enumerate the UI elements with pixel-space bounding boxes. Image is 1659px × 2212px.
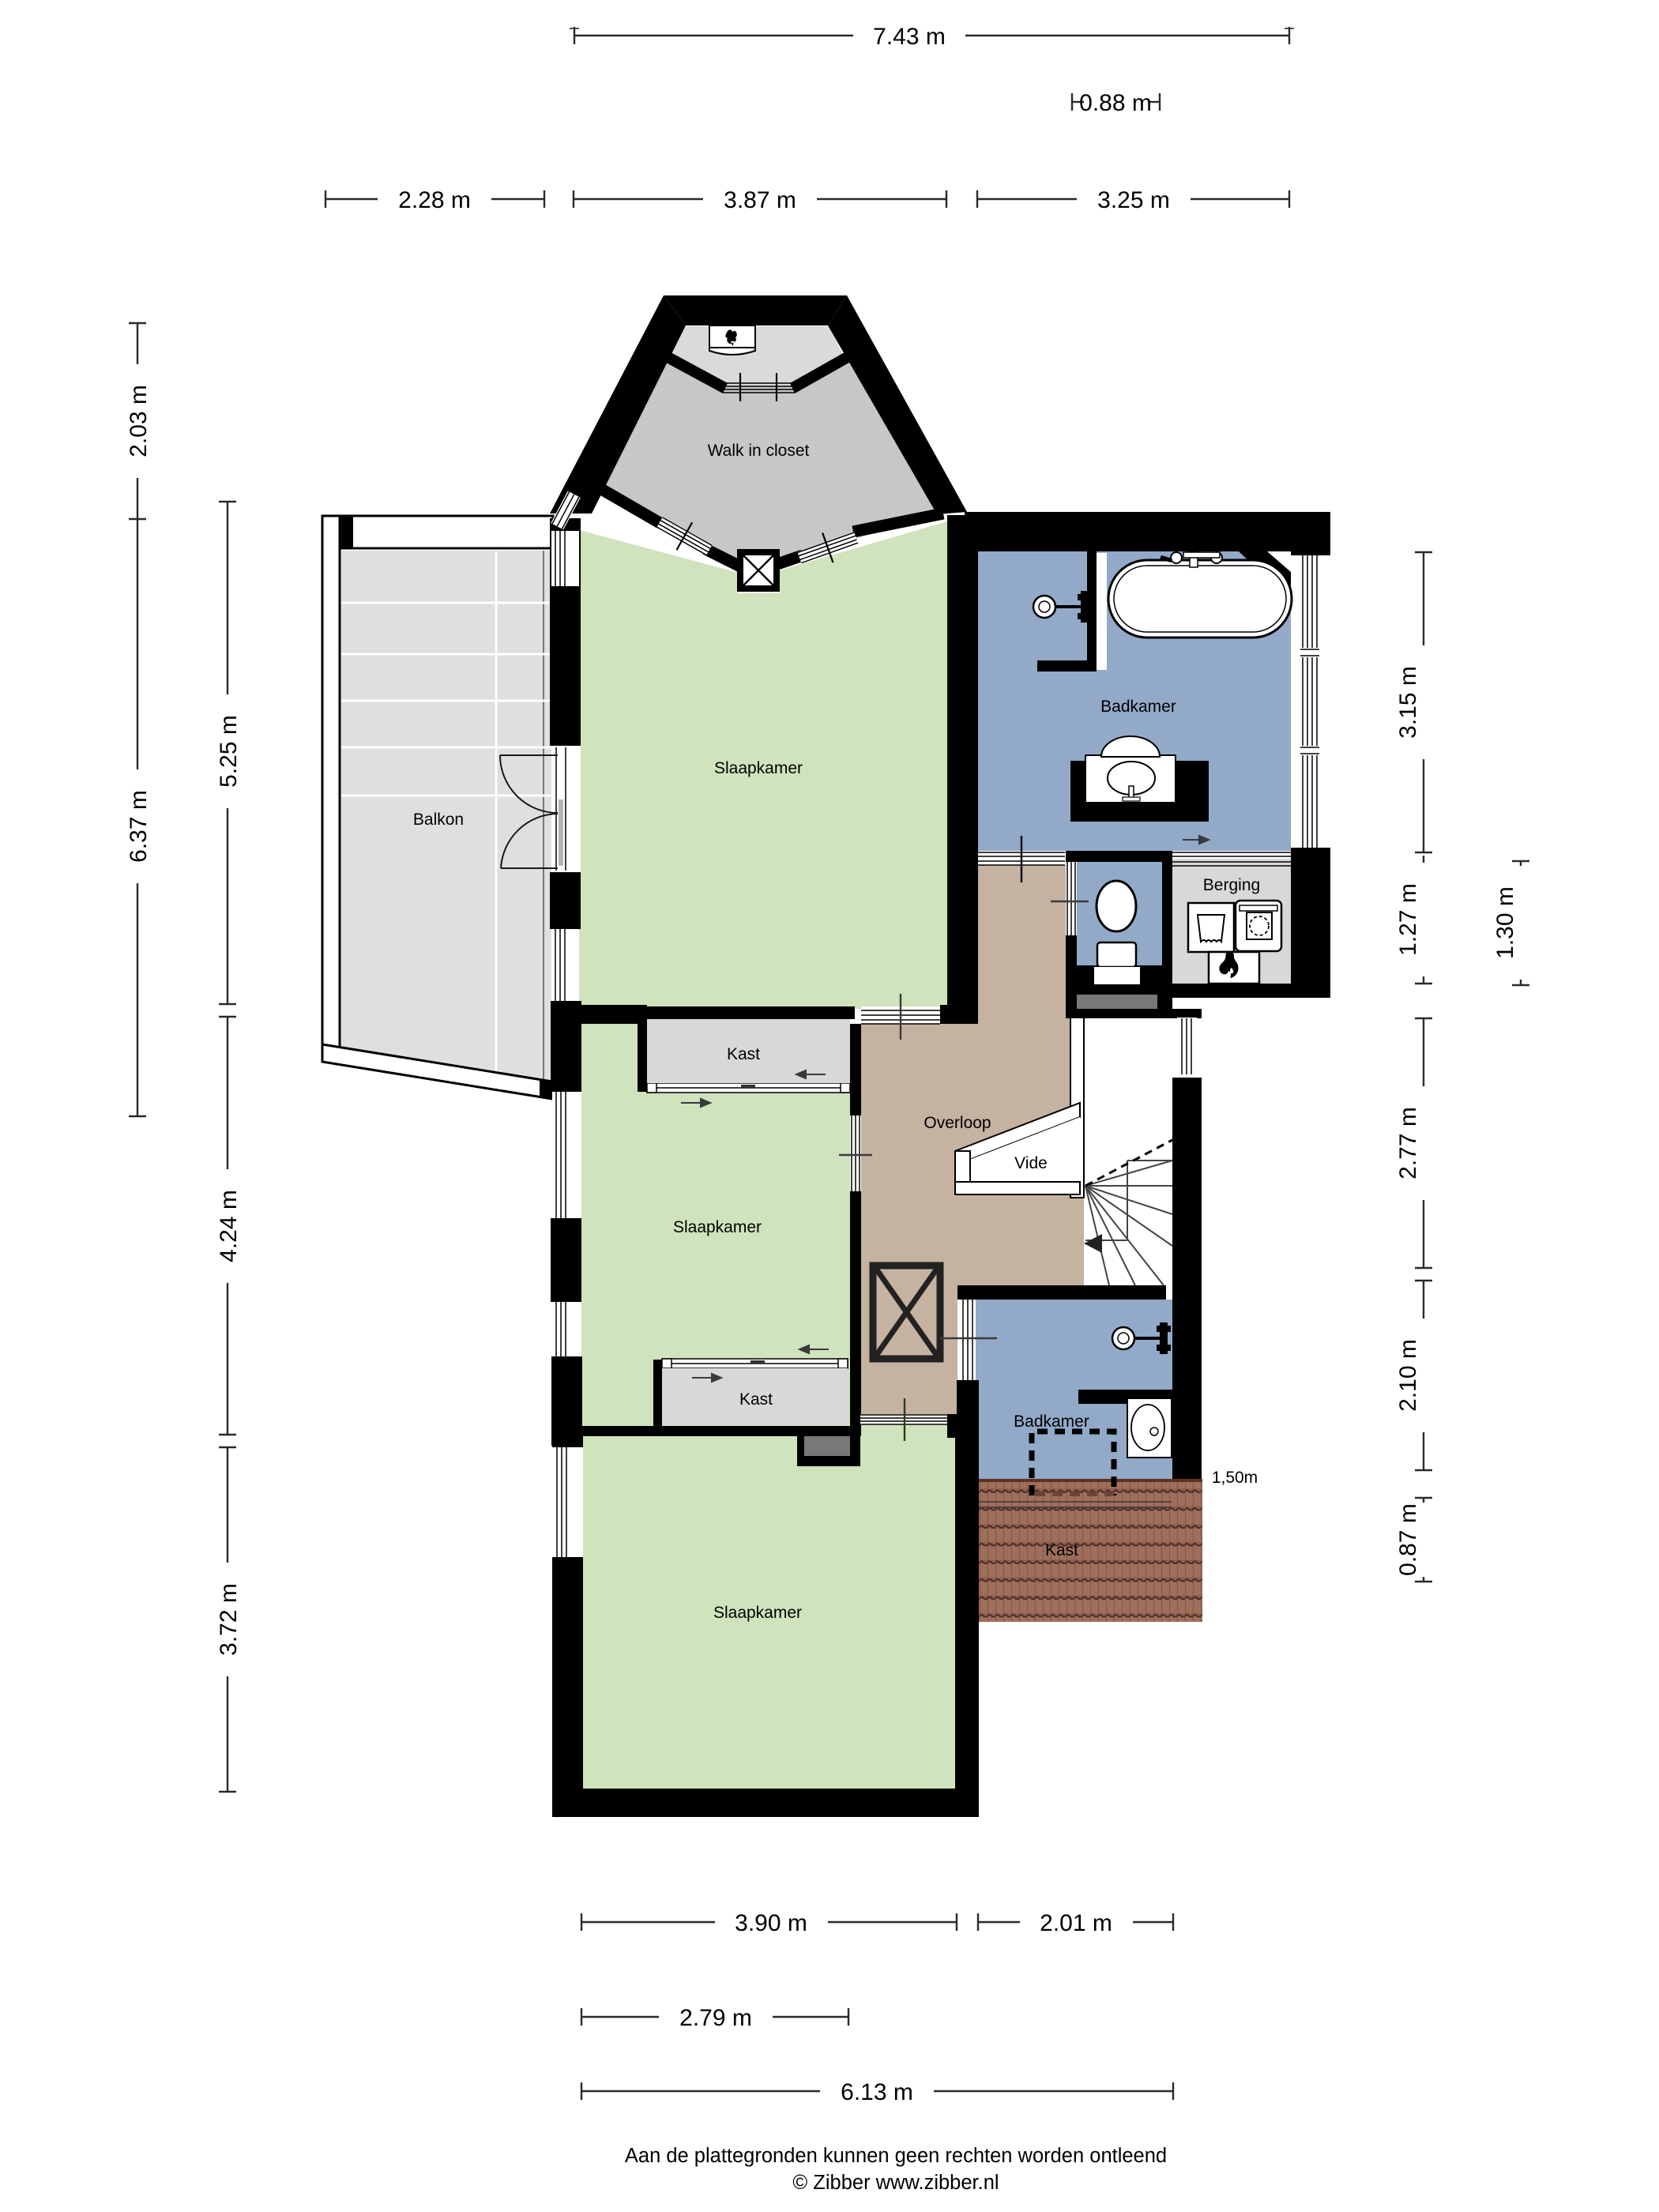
svg-text:3.90 m: 3.90 m [735, 1910, 807, 1936]
svg-text:Slaapkamer: Slaapkamer [713, 1604, 802, 1622]
svg-text:4.24 m: 4.24 m [216, 1190, 242, 1262]
svg-text:6.13 m: 6.13 m [841, 2079, 913, 2105]
svg-text:6.37 m: 6.37 m [126, 790, 152, 863]
svg-text:3.72 m: 3.72 m [216, 1583, 242, 1656]
svg-text:Berging: Berging [1203, 876, 1260, 894]
svg-text:2.03 m: 2.03 m [126, 385, 152, 457]
svg-text:1.27 m: 1.27 m [1395, 883, 1421, 956]
svg-text:3.15 m: 3.15 m [1395, 666, 1421, 739]
svg-text:2.77 m: 2.77 m [1395, 1107, 1421, 1179]
svg-text:2.10 m: 2.10 m [1395, 1339, 1421, 1412]
svg-text:0.88 m: 0.88 m [1079, 90, 1152, 116]
svg-text:Balkon: Balkon [413, 811, 464, 829]
svg-text:© Zibber www.zibber.nl: © Zibber www.zibber.nl [792, 2172, 999, 2194]
svg-text:Slaapkamer: Slaapkamer [714, 759, 803, 777]
svg-text:Badkamer: Badkamer [1100, 698, 1176, 716]
svg-text:Badkamer: Badkamer [1014, 1413, 1089, 1431]
svg-text:Overloop: Overloop [924, 1114, 991, 1132]
svg-text:1,50m: 1,50m [1212, 1469, 1258, 1487]
svg-text:Kast: Kast [739, 1390, 773, 1409]
svg-text:2.28 m: 2.28 m [398, 187, 471, 213]
svg-text:3.87 m: 3.87 m [724, 187, 796, 213]
svg-text:1.30 m: 1.30 m [1492, 886, 1518, 959]
svg-text:7.43 m: 7.43 m [873, 24, 946, 50]
svg-text:0.87 m: 0.87 m [1395, 1503, 1421, 1576]
svg-text:3.25 m: 3.25 m [1097, 187, 1170, 213]
svg-text:Walk in closet: Walk in closet [708, 442, 810, 460]
svg-text:2.01 m: 2.01 m [1040, 1910, 1112, 1936]
svg-text:5.25 m: 5.25 m [216, 715, 242, 788]
svg-text:Kast: Kast [1045, 1541, 1078, 1559]
svg-text:Kast: Kast [727, 1045, 760, 1063]
svg-text:Slaapkamer: Slaapkamer [673, 1218, 762, 1236]
svg-text:Vide: Vide [1014, 1154, 1048, 1172]
svg-text:2.79 m: 2.79 m [679, 2005, 752, 2031]
svg-text:Aan de plattegronden kunnen ge: Aan de plattegronden kunnen geen rechten… [625, 2145, 1167, 2167]
